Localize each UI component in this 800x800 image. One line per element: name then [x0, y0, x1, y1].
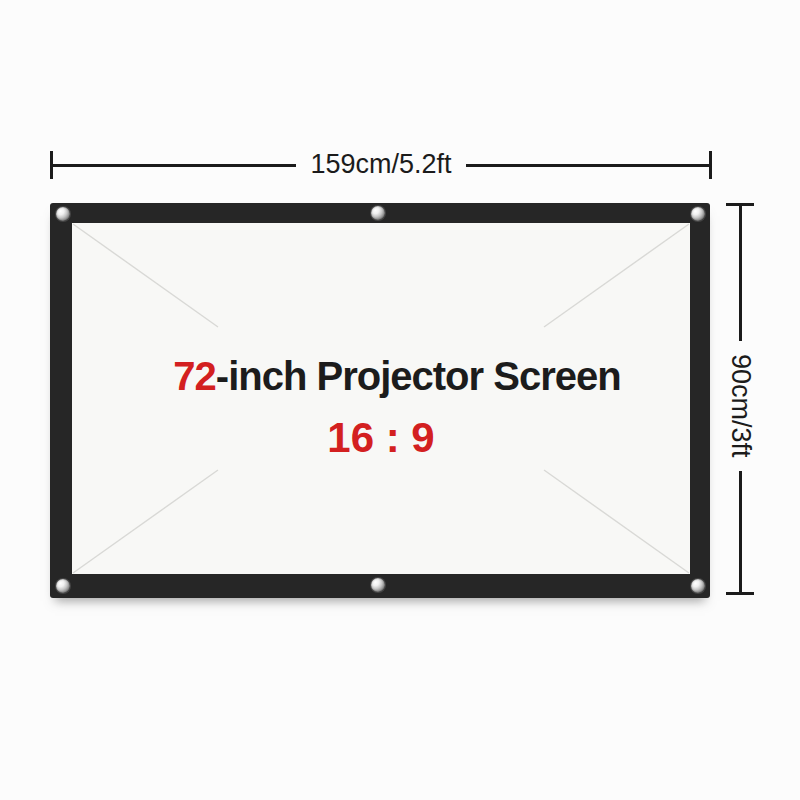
aspect-ratio-label: 16 : 9 [72, 413, 690, 463]
dimension-line-segment [739, 206, 742, 341]
dimension-line-segment [53, 164, 296, 167]
dimension-end-cap-bottom [726, 592, 754, 595]
screen-title: 72-inch Projector Screen [88, 352, 706, 400]
grommet-icon [691, 207, 705, 221]
crease-line [544, 470, 689, 573]
grommet-icon [56, 579, 70, 593]
height-dimension-label: 90cm/3ft [727, 341, 754, 471]
crease-line [73, 224, 218, 327]
screen-size-value: 72 [173, 354, 216, 398]
dimension-end-cap-right [709, 151, 712, 179]
height-dimension: 90cm/3ft [726, 203, 754, 595]
crease-line [544, 224, 689, 327]
width-dimension-label: 159cm/5.2ft [296, 151, 465, 178]
product-diagram: 159cm/5.2ft 90cm/3ft 72-inch Projector S… [0, 0, 800, 800]
projector-screen: 72-inch Projector Screen 16 : 9 [50, 203, 710, 598]
screen-title-suffix: -inch Projector Screen [216, 354, 621, 398]
grommet-icon [371, 578, 385, 592]
grommet-icon [691, 579, 705, 593]
grommet-icon [371, 206, 385, 220]
screen-surface: 72-inch Projector Screen 16 : 9 [72, 223, 690, 574]
crease-line [73, 470, 218, 573]
dimension-line-segment [466, 164, 709, 167]
grommet-icon [56, 207, 70, 221]
dimension-line-segment [739, 471, 742, 592]
screen-caption: 72-inch Projector Screen 16 : 9 [72, 352, 690, 463]
width-dimension: 159cm/5.2ft [50, 151, 712, 179]
